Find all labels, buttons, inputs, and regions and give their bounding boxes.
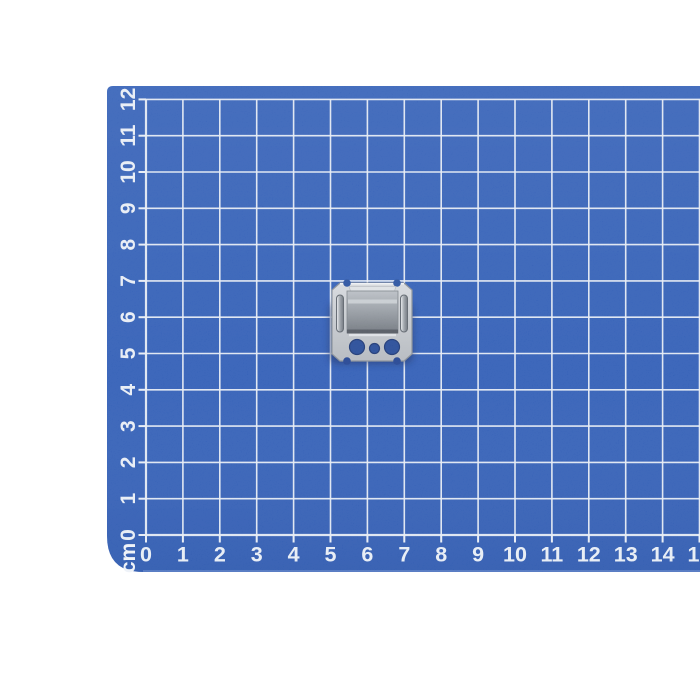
photo-recreation: 0123456789101112131415 0123456789101112 … bbox=[0, 0, 700, 700]
mat-texture bbox=[107, 86, 700, 572]
photo-stage: 0123456789101112131415 0123456789101112 … bbox=[0, 0, 700, 700]
